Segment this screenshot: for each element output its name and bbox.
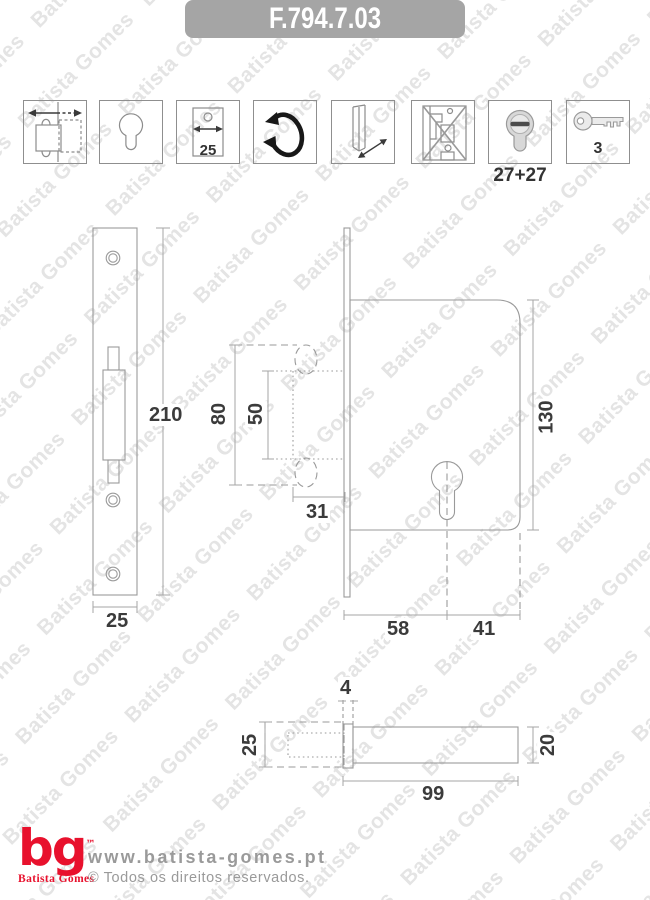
dim-faceplate-width: 25 [104,610,130,632]
product-code: F.794.7.03 [269,2,381,36]
dim-body-height: 130 [536,398,558,435]
technical-drawings [0,0,650,900]
keys-icon: 3 [566,100,630,164]
backset-icon: 25 [176,100,240,164]
website-link[interactable]: www.batista-gomes.pt [88,847,326,868]
dim-faceplate-height: 210 [147,404,184,426]
no-faceplate-icon [411,100,475,164]
dim-hook-outer: 80 [208,401,230,427]
company-logo: bg™ Batista Gomes [18,822,96,885]
lock-top-view [259,700,539,786]
sliding-door-icon [23,100,87,164]
dim-body-rear: 41 [471,618,497,640]
product-code-badge: F.794.7.03 [185,0,465,38]
reversible-glyph [254,101,316,163]
dim-hook-inner: 50 [245,401,267,427]
copyright-text: © Todos os direitos reservados. [88,870,310,886]
logo-company-name: Batista Gomes [18,873,96,885]
sliding-door-glyph [24,101,86,163]
lock-body-side-view [344,228,539,620]
dim-plate-thickness: 4 [338,677,353,699]
cylinder-size-label: 27+27 [484,165,556,187]
euro-cylinder-profile-icon [99,100,163,164]
door-thickness-glyph [332,101,394,163]
datasheet-page: Batista Gomes Batista Gomes Batista Gome… [0,0,650,900]
euro-profile-glyph [100,101,162,163]
dim-backset: 58 [385,618,411,640]
dim-body-length: 99 [420,783,446,805]
keys-count: 3 [567,140,629,158]
backset-value: 25 [177,142,239,159]
cylinder-icon [488,100,552,164]
dim-body-depth: 20 [537,732,559,758]
door-thickness-icon [331,100,395,164]
dim-top-plate-width: 25 [239,732,261,758]
logo-bg-text: bg™ [18,822,96,871]
no-faceplate-glyph [412,101,474,163]
cylinder-glyph [489,101,551,163]
dim-hook-reach: 31 [304,501,330,523]
reversible-icon [253,100,317,164]
